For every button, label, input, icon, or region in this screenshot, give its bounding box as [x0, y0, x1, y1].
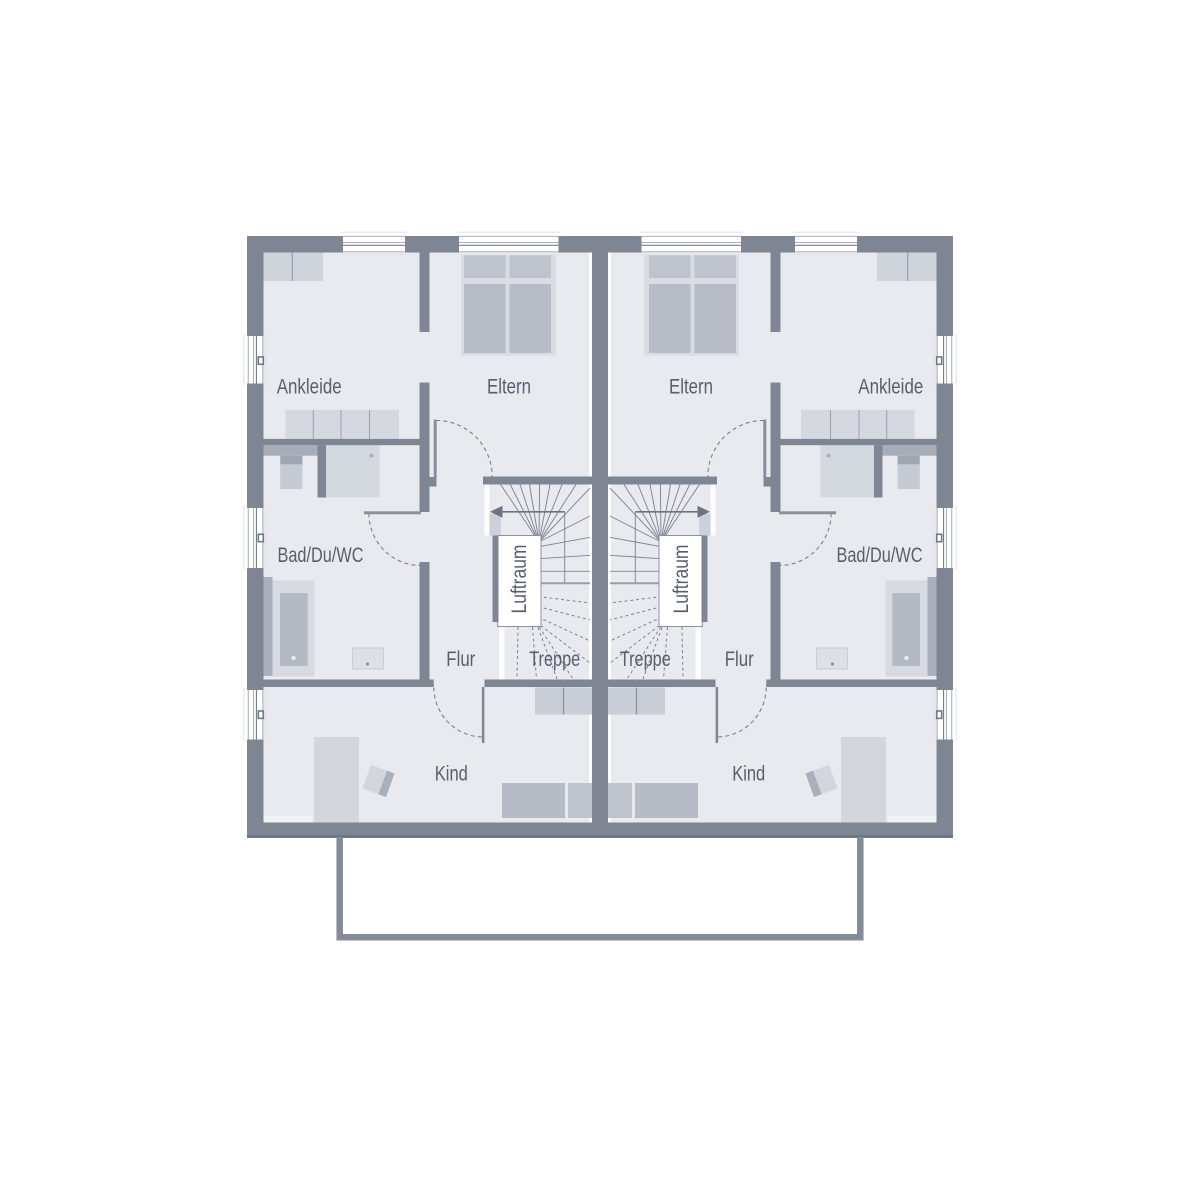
svg-text:Bad/Du/WC: Bad/Du/WC	[837, 543, 923, 567]
svg-text:Flur: Flur	[725, 647, 754, 671]
svg-text:Bad/Du/WC: Bad/Du/WC	[278, 543, 364, 567]
svg-text:Flur: Flur	[446, 647, 475, 671]
svg-text:Luftraum: Luftraum	[507, 545, 531, 614]
svg-text:Luftraum: Luftraum	[669, 545, 693, 614]
svg-text:Eltern: Eltern	[669, 375, 713, 399]
svg-text:Ankleide: Ankleide	[277, 375, 342, 399]
svg-text:Eltern: Eltern	[487, 375, 531, 399]
svg-text:Treppe: Treppe	[529, 647, 580, 671]
svg-text:Ankleide: Ankleide	[858, 375, 923, 399]
svg-text:Treppe: Treppe	[620, 647, 671, 671]
svg-text:Kind: Kind	[435, 762, 468, 786]
svg-text:Kind: Kind	[732, 762, 765, 786]
